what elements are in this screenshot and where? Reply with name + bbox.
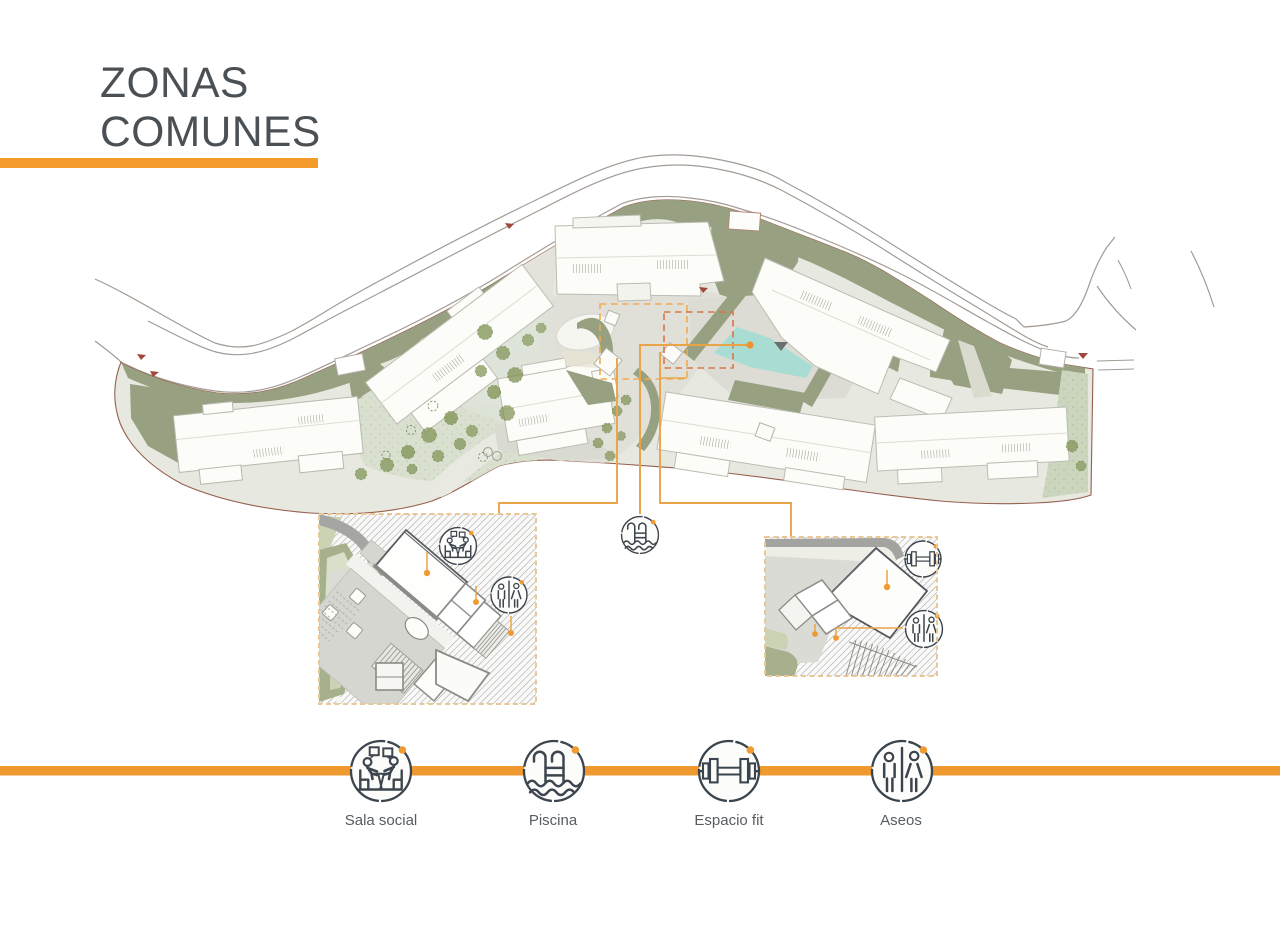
svg-text:COMUNES: COMUNES bbox=[100, 109, 321, 156]
svg-text:Sala social: Sala social bbox=[345, 812, 418, 829]
svg-text:ZONAS: ZONAS bbox=[100, 60, 249, 107]
svg-text:Piscina: Piscina bbox=[529, 812, 578, 829]
svg-text:Espacio fit: Espacio fit bbox=[694, 812, 764, 829]
svg-text:Aseos: Aseos bbox=[880, 812, 922, 829]
